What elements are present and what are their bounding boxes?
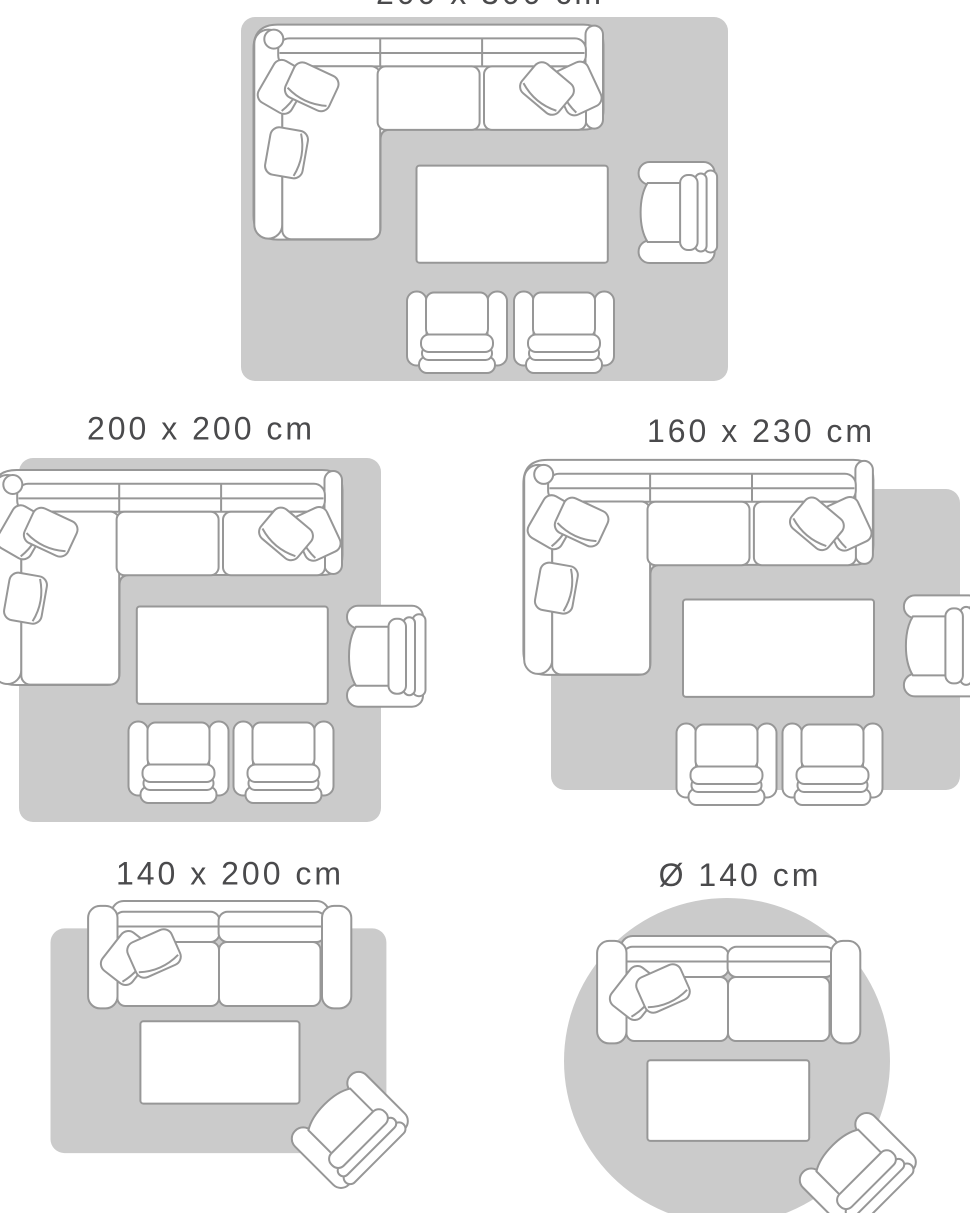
svg-text:160 x 230 cm: 160 x 230 cm bbox=[647, 413, 875, 449]
svg-text:200 x 200 cm: 200 x 200 cm bbox=[87, 411, 315, 447]
svg-text:200 x 300 cm: 200 x 300 cm bbox=[376, 0, 604, 11]
svg-text:Ø 140 cm: Ø 140 cm bbox=[659, 857, 822, 893]
svg-text:140 x 200 cm: 140 x 200 cm bbox=[116, 855, 344, 891]
